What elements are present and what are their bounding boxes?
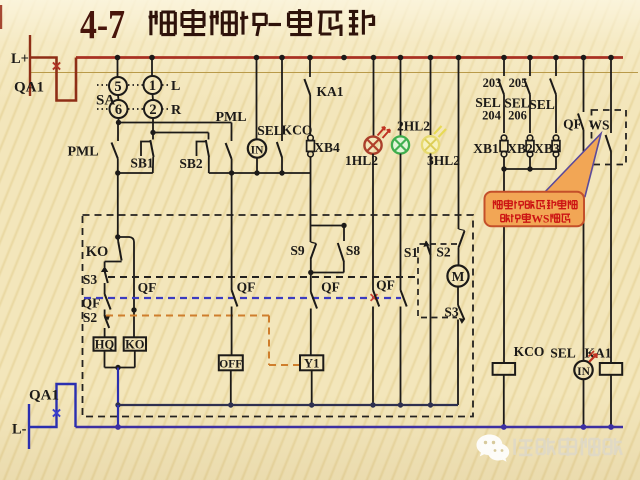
- svg-text:L+: L+: [11, 51, 29, 67]
- svg-text:WS: WS: [588, 118, 609, 133]
- svg-text:WS: WS: [532, 213, 550, 225]
- svg-text:QF: QF: [563, 117, 582, 132]
- svg-text:M: M: [452, 269, 465, 284]
- svg-text:IN: IN: [251, 144, 264, 156]
- svg-text:XB3: XB3: [534, 141, 560, 156]
- svg-text:SEL: SEL: [475, 95, 501, 110]
- svg-text:L: L: [171, 79, 180, 94]
- svg-text:XB4: XB4: [314, 140, 340, 155]
- svg-text:2HL2: 2HL2: [397, 119, 430, 134]
- svg-text:QF: QF: [237, 280, 256, 295]
- svg-text:IN: IN: [577, 366, 590, 378]
- svg-text:S1: S1: [404, 245, 419, 260]
- svg-text:QF: QF: [321, 280, 340, 295]
- svg-text:S9: S9: [290, 243, 305, 258]
- svg-text:SB1: SB1: [130, 156, 154, 171]
- svg-text:3HL2: 3HL2: [427, 153, 460, 168]
- svg-text:XB2: XB2: [507, 141, 533, 156]
- svg-text:KO: KO: [125, 338, 145, 352]
- svg-text:5: 5: [114, 79, 121, 95]
- svg-text:KA1: KA1: [585, 346, 612, 361]
- svg-text:SEL: SEL: [550, 346, 576, 361]
- svg-text:QF: QF: [376, 278, 395, 293]
- svg-text:QA1: QA1: [14, 80, 44, 96]
- svg-text:OFF: OFF: [219, 358, 242, 370]
- svg-text:L-: L-: [12, 422, 27, 438]
- svg-text:KO: KO: [86, 244, 109, 260]
- svg-text:SEL: SEL: [529, 97, 555, 112]
- svg-text:6: 6: [115, 102, 122, 118]
- svg-text:QF: QF: [138, 280, 157, 295]
- svg-text:4-7: 4-7: [80, 1, 125, 47]
- svg-text:HQ: HQ: [95, 338, 115, 352]
- svg-text:QA1: QA1: [29, 388, 59, 404]
- svg-text:Y1: Y1: [304, 357, 319, 371]
- svg-text:PML: PML: [215, 110, 246, 125]
- svg-text:R: R: [171, 103, 182, 118]
- svg-text:2: 2: [149, 102, 156, 118]
- svg-text:SA: SA: [96, 93, 115, 109]
- svg-text:KCO: KCO: [514, 344, 545, 359]
- svg-text:1: 1: [149, 78, 156, 94]
- svg-text:206: 206: [508, 109, 527, 123]
- svg-text:SEL: SEL: [504, 96, 530, 111]
- svg-text:204: 204: [482, 109, 502, 123]
- svg-text:SB2: SB2: [179, 156, 203, 171]
- svg-text:S3: S3: [444, 305, 459, 320]
- svg-text:KCO: KCO: [282, 123, 313, 138]
- svg-text:XB1: XB1: [473, 141, 499, 156]
- svg-text:S2: S2: [83, 310, 98, 325]
- svg-text:S8: S8: [346, 243, 361, 258]
- svg-text:205: 205: [509, 76, 528, 90]
- svg-text:SEL: SEL: [257, 123, 283, 138]
- svg-text:PML: PML: [67, 145, 98, 160]
- svg-text:S2: S2: [436, 245, 451, 260]
- svg-text:203: 203: [483, 76, 502, 90]
- svg-text:KA1: KA1: [317, 84, 344, 99]
- svg-text:S3: S3: [83, 272, 98, 287]
